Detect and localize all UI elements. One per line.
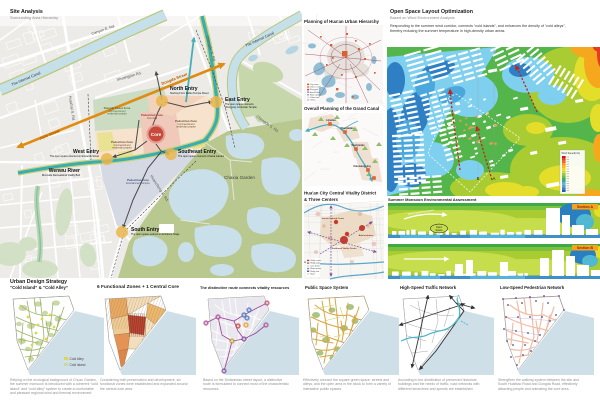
svg-text:Traditional Vitality Center: Traditional Vitality Center bbox=[331, 247, 356, 250]
svg-text:The open space oriented on Ent: The open space oriented on Entrance Stre… bbox=[50, 155, 100, 158]
svg-text:Wengying Confucian Temple: Wengying Confucian Temple bbox=[225, 106, 257, 109]
svg-text:Water system: Water system bbox=[310, 267, 321, 270]
svg-text:Southeast Entry: Southeast Entry bbox=[178, 149, 217, 155]
svg-text:Pedestrian Zone: Pedestrian Zone bbox=[141, 113, 163, 117]
svg-text:Overall Planning of the Grand: Overall Planning of the Grand Canal bbox=[304, 106, 379, 111]
svg-text:Vitality axis: Vitality axis bbox=[310, 270, 319, 273]
svg-text:& Three Centers: & Three Centers bbox=[304, 197, 338, 202]
svg-text:Riverside Recreational Vitalit: Riverside Recreational Vitality Belt bbox=[42, 174, 80, 177]
svg-text:Wind Speed(m/s): Wind Speed(m/s) bbox=[562, 152, 581, 155]
svg-text:residential complex: residential complex bbox=[107, 113, 128, 116]
svg-text:Wenwu River: Wenwu River bbox=[49, 168, 80, 174]
svg-text:North Entry: North Entry bbox=[170, 86, 198, 92]
svg-text:Hua'an City Central Vitality D: Hua'an City Central Vitality District bbox=[304, 191, 377, 196]
svg-text:South Entry: South Entry bbox=[131, 227, 160, 233]
svg-text:B: B bbox=[477, 176, 480, 181]
svg-text:East Entry: East Entry bbox=[225, 97, 250, 103]
svg-text:Dongda Street Zone: Dongda Street Zone bbox=[104, 106, 131, 110]
svg-text:A: A bbox=[493, 42, 496, 47]
svg-text:A: A bbox=[493, 176, 496, 181]
svg-text:Cold Island: Cold Island bbox=[70, 363, 86, 367]
svg-text:Section B: Section B bbox=[577, 246, 594, 250]
svg-text:Vitality center: Vitality center bbox=[310, 259, 321, 262]
svg-text:Starting From Dafao Temple Str: Starting From Dafao Temple Street bbox=[170, 92, 209, 95]
svg-text:Hua'an Cultural Center: Hua'an Cultural Center bbox=[322, 217, 345, 220]
svg-text:Cold Alley: Cold Alley bbox=[70, 357, 85, 361]
svg-text:Pedestrian Zone: Pedestrian Zone bbox=[111, 140, 133, 144]
svg-text:District center: District center bbox=[310, 86, 321, 89]
svg-text:City center: City center bbox=[310, 83, 319, 86]
svg-text:B: B bbox=[477, 42, 480, 47]
svg-text:Core Area: Core Area bbox=[147, 117, 158, 120]
svg-text:Tuanjiedao: Tuanjiedao bbox=[351, 143, 365, 147]
svg-text:The open space evolves on Entr: The open space evolves on Entrance Stage bbox=[131, 233, 180, 236]
svg-text:Pedestrian Zone: Pedestrian Zone bbox=[127, 178, 149, 182]
svg-text:Core district: Core district bbox=[310, 264, 320, 267]
svg-text:Section A: Section A bbox=[577, 205, 593, 209]
svg-text:Lijiadao: Lijiadao bbox=[326, 118, 336, 122]
svg-text:Vitality node: Vitality node bbox=[310, 262, 320, 265]
svg-text:Summer Monsoon Environmental A: Summer Monsoon Environmental Assessment bbox=[388, 197, 477, 202]
svg-text:Planning of Hua'an Urban Hiera: Planning of Hua'an Urban Hierarchy bbox=[304, 19, 380, 24]
svg-text:Space: Space bbox=[435, 228, 443, 232]
svg-text:Others: Others bbox=[310, 99, 315, 102]
svg-text:West Entry: West Entry bbox=[73, 149, 99, 155]
svg-text:Entertainment complex: Entertainment complex bbox=[126, 182, 150, 185]
svg-text:The open space connects Chaxia: The open space connects Chaxia Garden bbox=[178, 155, 225, 158]
svg-text:Water system: Water system bbox=[310, 93, 321, 96]
svg-text:Arterial road: Arterial road bbox=[310, 91, 320, 94]
svg-text:Pedestrian Zone: Pedestrian Zone bbox=[175, 119, 197, 123]
svg-text:Chaxia Garden: Chaxia Garden bbox=[224, 175, 255, 180]
svg-text:Xiaowangying: Xiaowangying bbox=[353, 164, 371, 168]
svg-text:Administration: Administration bbox=[359, 234, 374, 237]
svg-text:residential complex: residential complex bbox=[112, 147, 133, 150]
svg-text:Qiaojiadao: Qiaojiadao bbox=[340, 126, 354, 130]
svg-text:Road: Road bbox=[310, 274, 314, 276]
svg-text:residential complex: residential complex bbox=[176, 126, 197, 129]
svg-text:Core: Core bbox=[151, 132, 162, 137]
